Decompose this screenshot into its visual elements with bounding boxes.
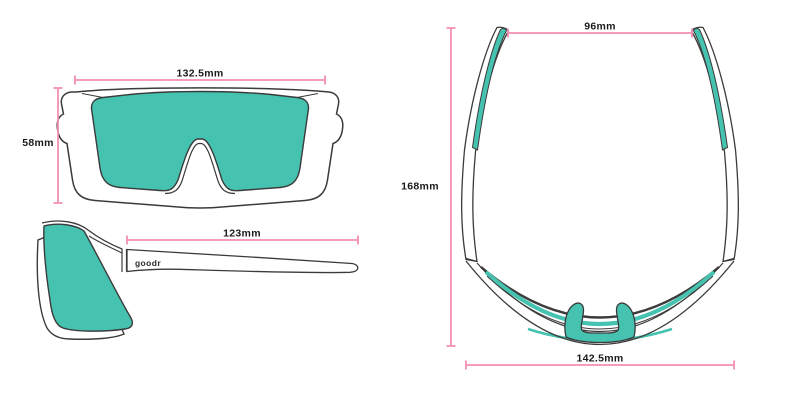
frame-width-label: 142.5mm (576, 353, 623, 365)
front-view (57, 88, 343, 208)
temple-spread-label: 96mm (584, 21, 616, 33)
front-height-label: 58mm (22, 137, 54, 149)
overall-length-dimension: 168mm (401, 28, 455, 346)
temple-length-dimension: 123mm (127, 228, 358, 245)
top-view-left-temple (462, 27, 509, 261)
top-lens-crescent-border (487, 276, 713, 329)
diagram-svg: 132.5mm 58mm goodr 123mm (0, 0, 800, 400)
side-view: goodr (37, 221, 357, 339)
top-frame-inner-edge (477, 263, 723, 332)
overall-length-label: 168mm (401, 181, 439, 193)
front-width-label: 132.5mm (176, 68, 223, 80)
top-view (462, 27, 739, 344)
temple-band (462, 27, 509, 261)
temple-spread-dimension: 96mm (508, 21, 692, 38)
dimension-line (447, 28, 456, 346)
top-lens-teal-crescent (486, 272, 714, 324)
side-lens (44, 224, 133, 331)
frame-width-dimension: 142.5mm (466, 353, 734, 370)
top-lens-back-edge (481, 267, 719, 318)
temple-length-label: 123mm (223, 228, 261, 240)
front-width-dimension: 132.5mm (75, 68, 325, 85)
side-hinge-lines (122, 249, 127, 273)
front-height-dimension: 58mm (22, 88, 62, 203)
sunglasses-dimensions-diagram: 132.5mm 58mm goodr 123mm (0, 0, 800, 400)
side-temple-arm (127, 250, 358, 273)
top-view-right-temple (692, 27, 739, 261)
goodr-logo: goodr (135, 258, 161, 268)
